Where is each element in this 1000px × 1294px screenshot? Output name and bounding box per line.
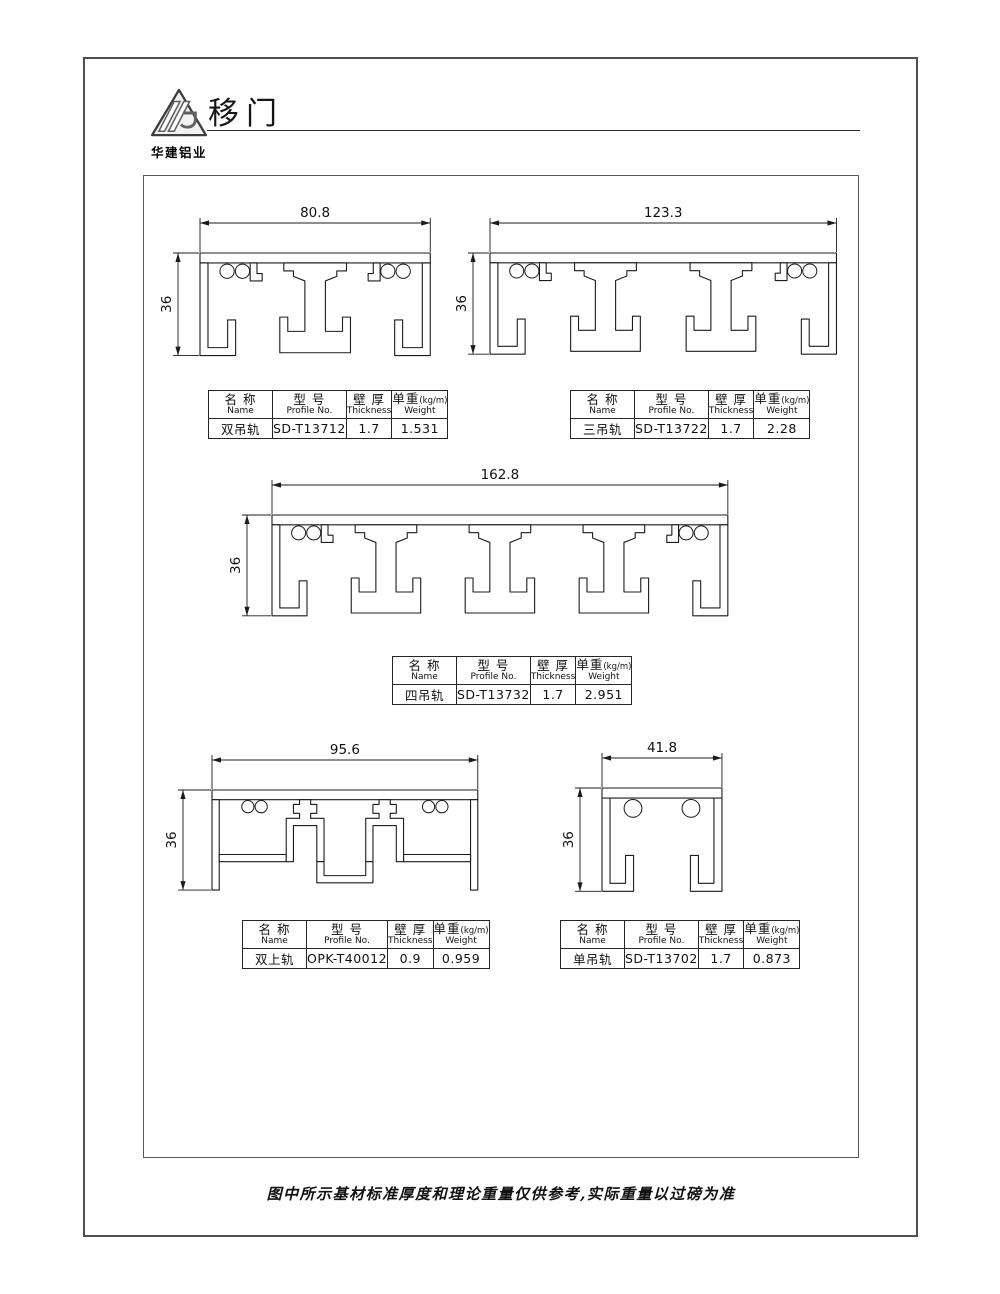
value-thickness: 1.7 — [708, 419, 753, 439]
value-name: 四吊轨 — [393, 685, 457, 705]
vertical-dimension: 36 — [159, 253, 199, 356]
horizontal-dimension: 41.8 — [602, 740, 722, 787]
value-model: SD-T13712 — [273, 419, 347, 439]
spec-header-row: 名 称Name 型 号Profile No. 壁 厚Thickness 单重(k… — [561, 921, 800, 949]
value-name: 三吊轨 — [571, 419, 635, 439]
spec-table-triple-hanging-track: 名 称Name 型 号Profile No. 壁 厚Thickness 单重(k… — [570, 390, 810, 439]
header-thickness: 壁 厚Thickness — [388, 921, 433, 949]
vertical-dimension: 36 — [561, 788, 601, 891]
header-model: 型 号Profile No. — [635, 391, 709, 419]
spec-value-row: 四吊轨 SD-T13732 1.7 2.951 — [393, 685, 632, 705]
spec-table-double-upper-track: 名 称Name 型 号Profile No. 壁 厚Thickness 单重(k… — [242, 920, 490, 969]
vertical-dimension: 36 — [164, 790, 211, 890]
company-logo: 华建铝业 — [141, 88, 217, 161]
profile-cross-section — [602, 788, 722, 891]
value-weight: 2.951 — [576, 685, 632, 705]
horizontal-dimension: 162.8 — [272, 467, 728, 514]
dim-height-label: 36 — [228, 557, 244, 574]
profile-cross-section — [490, 253, 836, 354]
title-underline — [207, 130, 860, 131]
spec-value-row: 单吊轨 SD-T13702 1.7 0.873 — [561, 949, 800, 969]
header-name: 名 称Name — [393, 657, 457, 685]
drawing-single-hanging-track: 41.836 — [535, 725, 785, 911]
company-name: 华建铝业 — [141, 142, 217, 161]
value-weight: 1.531 — [392, 419, 448, 439]
spec-table-single-hanging-track: 名 称Name 型 号Profile No. 壁 厚Thickness 单重(k… — [560, 920, 800, 969]
vertical-dimension: 36 — [454, 253, 489, 354]
value-model: OPK-T40012 — [307, 949, 388, 969]
footer-note: 图中所示基材标准厚度和理论重量仅供参考,实际重量以过磅为准 — [143, 1183, 859, 1204]
spec-header-row: 名 称Name 型 号Profile No. 壁 厚Thickness 单重(k… — [243, 921, 490, 949]
dim-height-label: 36 — [454, 295, 470, 312]
header-weight: 单重(kg/m)Weight — [433, 921, 489, 949]
spec-value-row: 三吊轨 SD-T13722 1.7 2.28 — [571, 419, 810, 439]
value-model: SD-T13732 — [457, 685, 531, 705]
header-name: 名 称Name — [209, 391, 273, 419]
header-thickness: 壁 厚Thickness — [346, 391, 391, 419]
dim-width-label: 80.8 — [300, 205, 330, 221]
value-thickness: 1.7 — [346, 419, 391, 439]
horizontal-dimension: 123.3 — [490, 205, 836, 252]
dim-width-label: 162.8 — [481, 467, 520, 483]
value-name: 双吊轨 — [209, 419, 273, 439]
header-thickness: 壁 厚Thickness — [530, 657, 575, 685]
header-thickness: 壁 厚Thickness — [708, 391, 753, 419]
drawing-triple-hanging-track: 123.336 — [435, 192, 875, 374]
profile-cross-section — [212, 790, 478, 890]
profile-cross-section — [272, 515, 728, 616]
value-weight: 0.873 — [744, 949, 800, 969]
value-thickness: 0.9 — [388, 949, 433, 969]
value-thickness: 1.7 — [530, 685, 575, 705]
spec-header-row: 名 称Name 型 号Profile No. 壁 厚Thickness 单重(k… — [393, 657, 632, 685]
dim-height-label: 36 — [164, 831, 180, 848]
dim-height-label: 36 — [159, 296, 175, 313]
header-name: 名 称Name — [561, 921, 625, 949]
header-model: 型 号Profile No. — [307, 921, 388, 949]
value-weight: 0.959 — [433, 949, 489, 969]
drawing-quad-hanging-track: 162.836 — [215, 452, 775, 634]
header-name: 名 称Name — [243, 921, 307, 949]
profile-cross-section — [200, 253, 430, 356]
drawing-double-hanging-track: 80.836 — [145, 192, 455, 374]
spec-value-row: 双上轨 OPK-T40012 0.9 0.959 — [243, 949, 490, 969]
page-title: 移门 — [208, 88, 284, 133]
header-thickness: 壁 厚Thickness — [698, 921, 743, 949]
spec-value-row: 双吊轨 SD-T13712 1.7 1.531 — [209, 419, 448, 439]
header-model: 型 号Profile No. — [625, 921, 699, 949]
header-weight: 单重(kg/m)Weight — [392, 391, 448, 419]
dim-width-label: 123.3 — [644, 205, 683, 221]
header-name: 名 称Name — [571, 391, 635, 419]
drawing-double-upper-track: 95.636 — [155, 725, 505, 911]
catalog-page: 华建铝业 移门 80.836 123.336 162.836 95.636 41… — [0, 0, 1000, 1294]
header-weight: 单重(kg/m)Weight — [754, 391, 810, 419]
vertical-dimension: 36 — [228, 515, 271, 616]
spec-header-row: 名 称Name 型 号Profile No. 壁 厚Thickness 单重(k… — [571, 391, 810, 419]
spec-table-double-hanging-track: 名 称Name 型 号Profile No. 壁 厚Thickness 单重(k… — [208, 390, 448, 439]
value-name: 双上轨 — [243, 949, 307, 969]
value-name: 单吊轨 — [561, 949, 625, 969]
horizontal-dimension: 95.6 — [212, 742, 478, 789]
horizontal-dimension: 80.8 — [200, 205, 430, 252]
header-weight: 单重(kg/m)Weight — [576, 657, 632, 685]
logo-triangle-mark — [150, 88, 208, 138]
dim-height-label: 36 — [561, 831, 577, 848]
dim-width-label: 41.8 — [647, 740, 677, 756]
spec-header-row: 名 称Name 型 号Profile No. 壁 厚Thickness 单重(k… — [209, 391, 448, 419]
header-model: 型 号Profile No. — [457, 657, 531, 685]
value-model: SD-T13722 — [635, 419, 709, 439]
value-model: SD-T13702 — [625, 949, 699, 969]
spec-table-quad-hanging-track: 名 称Name 型 号Profile No. 壁 厚Thickness 单重(k… — [392, 656, 632, 705]
value-thickness: 1.7 — [698, 949, 743, 969]
header-weight: 单重(kg/m)Weight — [744, 921, 800, 949]
dim-width-label: 95.6 — [330, 742, 360, 758]
value-weight: 2.28 — [754, 419, 810, 439]
header-model: 型 号Profile No. — [273, 391, 347, 419]
